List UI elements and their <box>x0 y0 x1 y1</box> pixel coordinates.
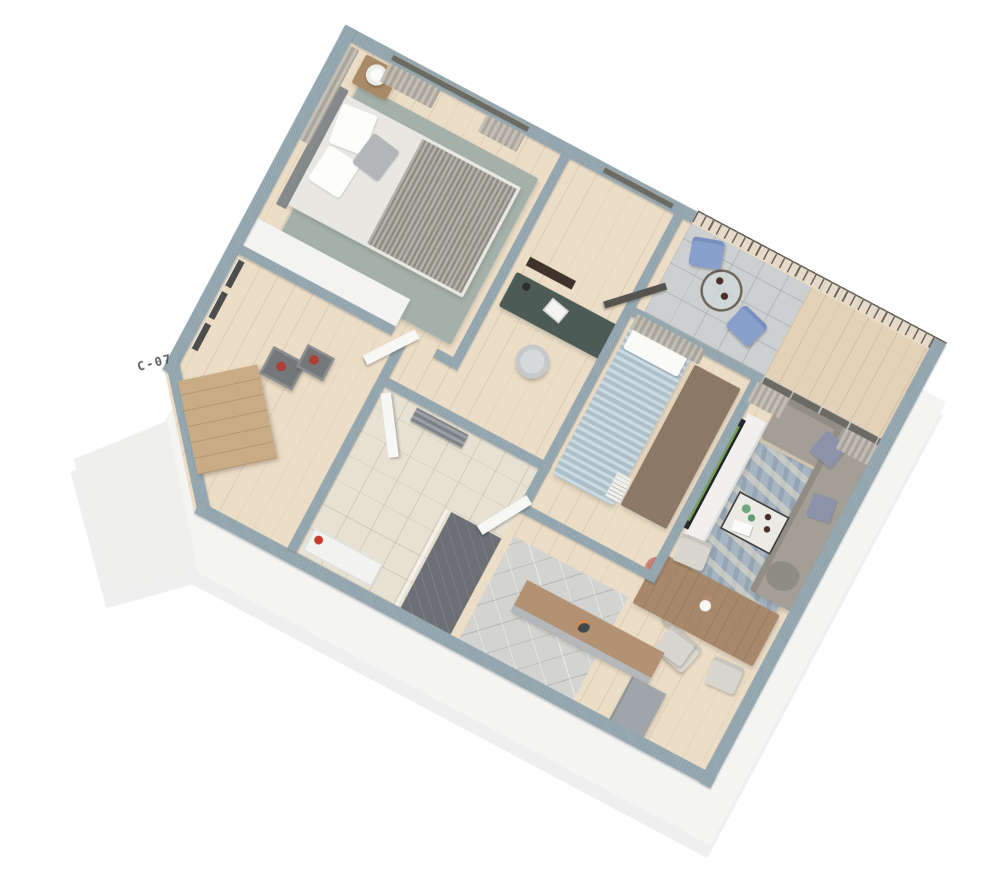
apartment-plan: C-07 <box>110 25 947 788</box>
floorplan-render: C-07 <box>0 0 1000 878</box>
balcony-chair <box>688 236 725 270</box>
